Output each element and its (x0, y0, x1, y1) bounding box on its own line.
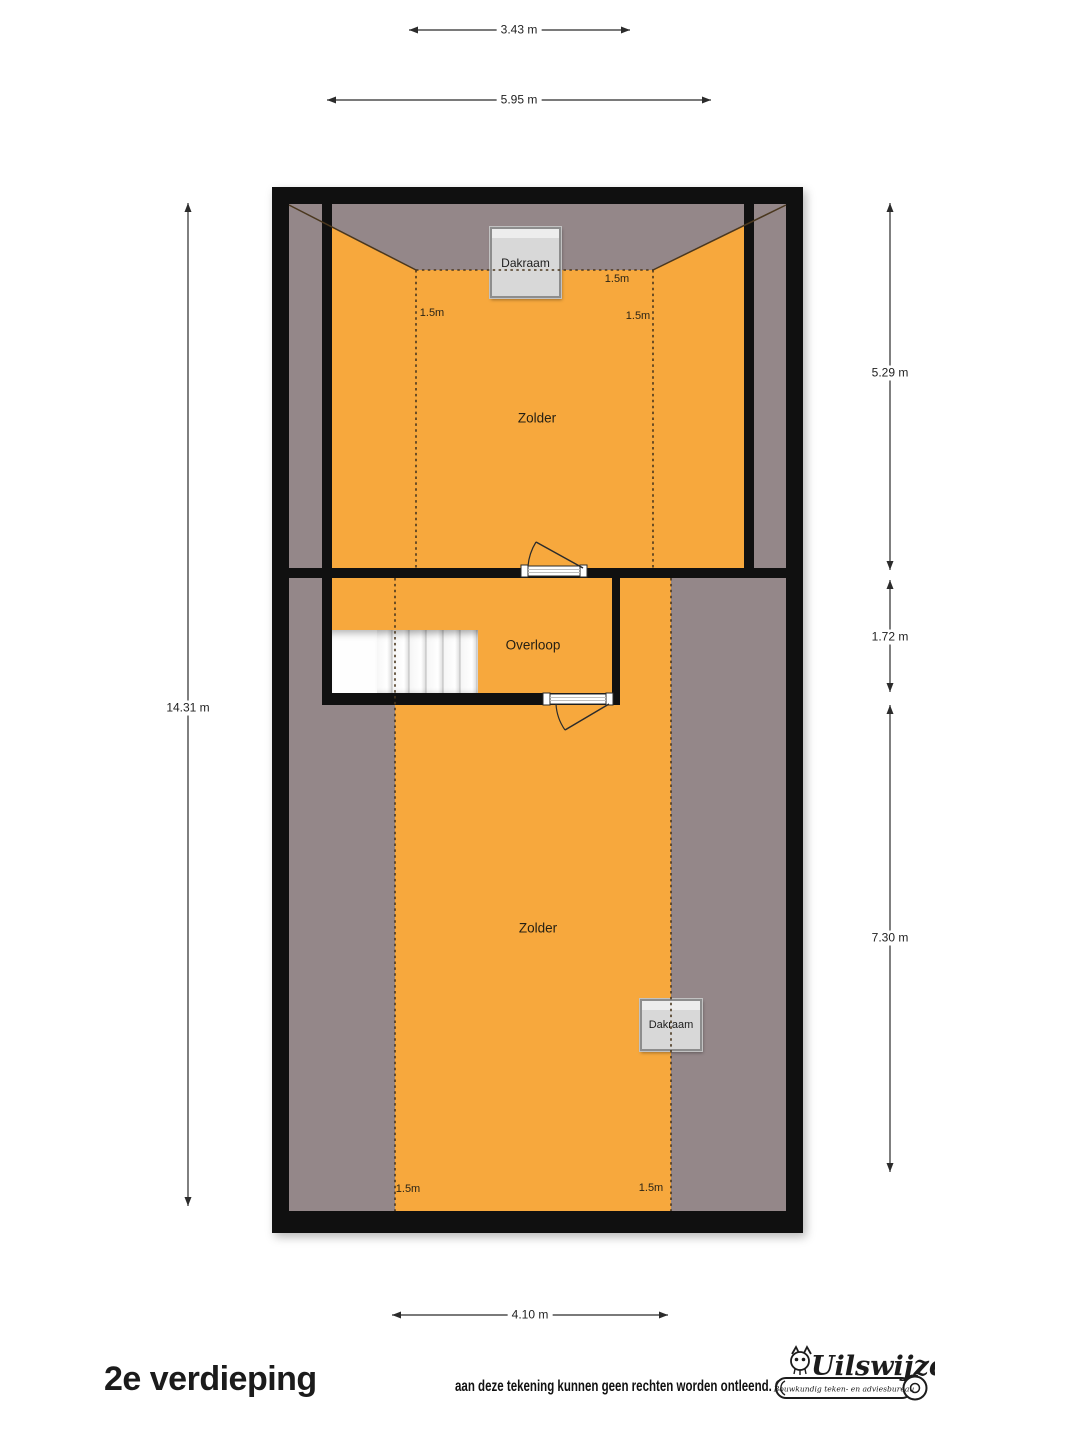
wall (322, 578, 332, 705)
dimension-top-outer: 5.95 m (497, 93, 542, 108)
room-label-zolder-top: Zolder (518, 411, 556, 426)
wall (322, 693, 620, 705)
stair-landing (332, 630, 377, 693)
page-title: 2e verdieping (104, 1360, 317, 1399)
dimension-right-middle: 1.72 m (868, 630, 913, 645)
company-logo: Uilswijze Bouwkundig teken- en adviesbur… (773, 1345, 935, 1405)
skylight-top: Dakraam (490, 227, 561, 298)
floorplan-page: Dakraam Dakraam (0, 0, 1080, 1434)
dimension-bottom: 4.10 m (508, 1308, 553, 1323)
headroom-label-upper-right: 1.5m (626, 310, 650, 322)
skylight-top-label: Dakraam (501, 256, 550, 270)
dimension-right-upper: 5.29 m (868, 366, 913, 381)
headroom-label-lower-right: 1.5m (639, 1182, 663, 1194)
skylight-bottom-label: Dakraam (649, 1019, 694, 1031)
room-label-overloop: Overloop (506, 638, 561, 653)
disclaimer-text: aan deze tekening kunnen geen rechten wo… (455, 1378, 784, 1396)
dimension-right-lower: 7.30 m (868, 931, 913, 946)
logo-name: Uilswijze (811, 1351, 935, 1382)
wall (744, 187, 754, 578)
skylight-bottom: Dakraam (640, 999, 702, 1051)
wall (612, 578, 620, 705)
headroom-label-upper-ridge: 1.5m (605, 273, 629, 285)
owl-icon (791, 1347, 811, 1375)
dimension-top-inner: 3.43 m (497, 23, 542, 38)
wall (322, 187, 332, 578)
headroom-label-lower-left: 1.5m (396, 1183, 420, 1195)
staircase (332, 630, 478, 693)
room-zolder-bottom-upper-strip (620, 578, 671, 705)
headroom-label-upper-left: 1.5m (420, 307, 444, 319)
room-zolder-bottom (395, 705, 671, 1211)
logo-tagline: Bouwkundig teken- en adviesbureau (773, 1385, 914, 1394)
dimension-left: 14.31 m (162, 701, 213, 716)
room-label-zolder-bottom: Zolder (519, 921, 557, 936)
wall (272, 568, 803, 578)
